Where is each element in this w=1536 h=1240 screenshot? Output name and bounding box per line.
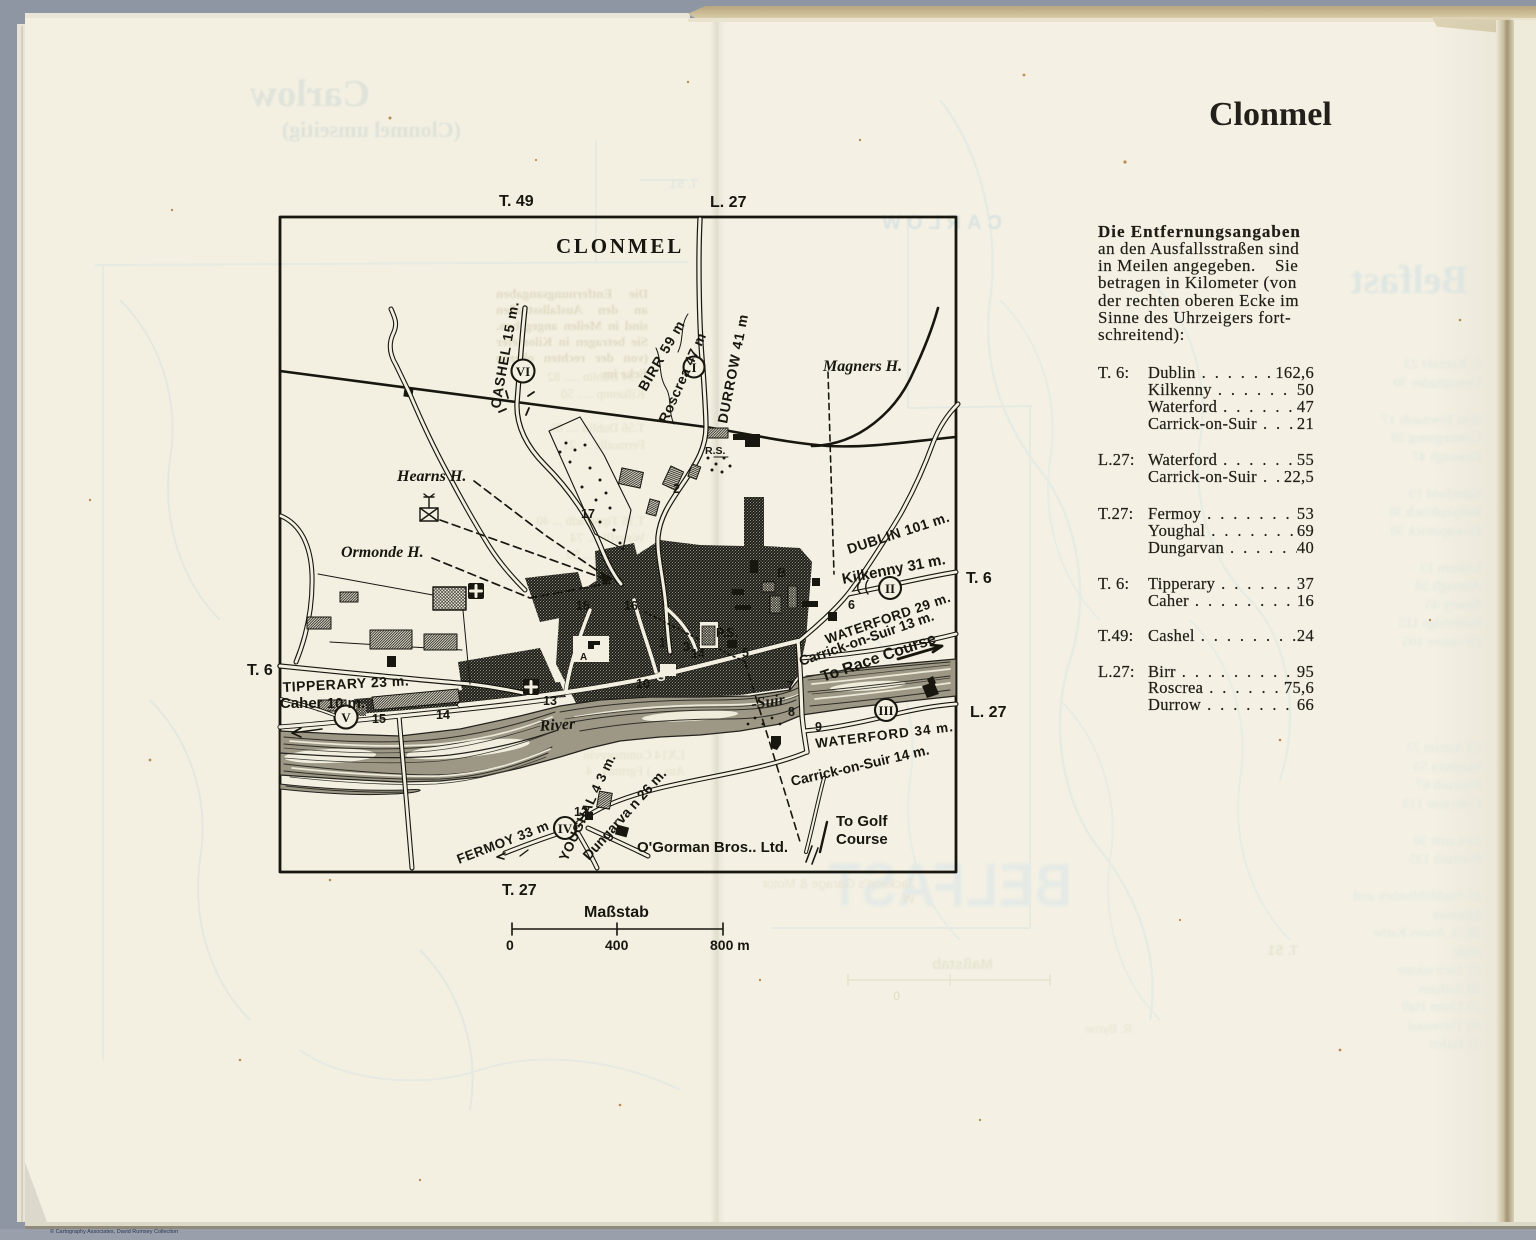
svg-text:6: 6 (848, 598, 855, 612)
svg-text:Course: Course (836, 831, 888, 848)
svg-text:CLONMEL: CLONMEL (556, 234, 684, 258)
svg-text:5: 5 (742, 646, 749, 660)
svg-text:R.S.: R.S. (705, 445, 726, 457)
svg-text:B: B (777, 566, 786, 580)
svg-text:13: 13 (543, 694, 557, 708)
svg-text:7: 7 (787, 679, 794, 693)
svg-text:1: 1 (659, 636, 666, 650)
svg-text:A: A (580, 652, 587, 663)
svg-text:WATERFORD 34 m.: WATERFORD 34 m. (815, 719, 955, 751)
svg-text:Ormonde H.: Ormonde H. (341, 544, 424, 561)
svg-text:8: 8 (788, 705, 795, 719)
svg-text:T. 6: T. 6 (247, 662, 273, 679)
svg-text:18: 18 (576, 599, 590, 613)
svg-text:River: River (538, 715, 576, 735)
svg-text:To Golf: To Golf (836, 813, 888, 830)
svg-text:G: G (656, 670, 666, 684)
svg-text:L. 27: L. 27 (710, 194, 747, 211)
svg-text:T. 27: T. 27 (502, 882, 537, 899)
svg-text:17: 17 (581, 507, 595, 521)
svg-text:Maßstab: Maßstab (584, 904, 649, 921)
svg-text:II: II (885, 581, 895, 596)
svg-text:800 m: 800 m (710, 937, 750, 953)
svg-text:16: 16 (624, 599, 638, 613)
svg-text:0: 0 (506, 937, 514, 953)
svg-text:3: 3 (683, 640, 690, 654)
svg-text:T. 6: T. 6 (966, 570, 992, 587)
svg-text:Caher 10 m.: Caher 10 m. (280, 695, 365, 712)
svg-text:Magners H.: Magners H. (822, 358, 902, 375)
svg-text:14: 14 (691, 647, 705, 661)
svg-text:15: 15 (372, 712, 386, 726)
svg-text:III: III (878, 703, 893, 718)
svg-text:L. 27: L. 27 (970, 704, 1007, 721)
svg-text:10: 10 (636, 677, 650, 691)
svg-text:DURROW 41 m: DURROW 41 m (714, 312, 751, 424)
svg-text:TIPPERARY 23 m.: TIPPERARY 23 m. (282, 672, 409, 695)
svg-text:O'Gorman Bros.. Ltd.: O'Gorman Bros.. Ltd. (637, 839, 788, 856)
svg-text:2: 2 (673, 482, 680, 496)
svg-text:9: 9 (815, 720, 822, 734)
svg-text:400: 400 (605, 937, 629, 953)
svg-text:V: V (341, 710, 351, 725)
svg-text:Hearns H.: Hearns H. (396, 468, 466, 485)
svg-text:VI: VI (516, 364, 530, 379)
svg-text:14: 14 (436, 708, 450, 722)
svg-text:P.S.: P.S. (716, 626, 738, 640)
svg-text:T. 49: T. 49 (499, 193, 534, 210)
svg-text:Carrick-on-Suir 14 m.: Carrick-on-Suir 14 m. (789, 741, 931, 788)
